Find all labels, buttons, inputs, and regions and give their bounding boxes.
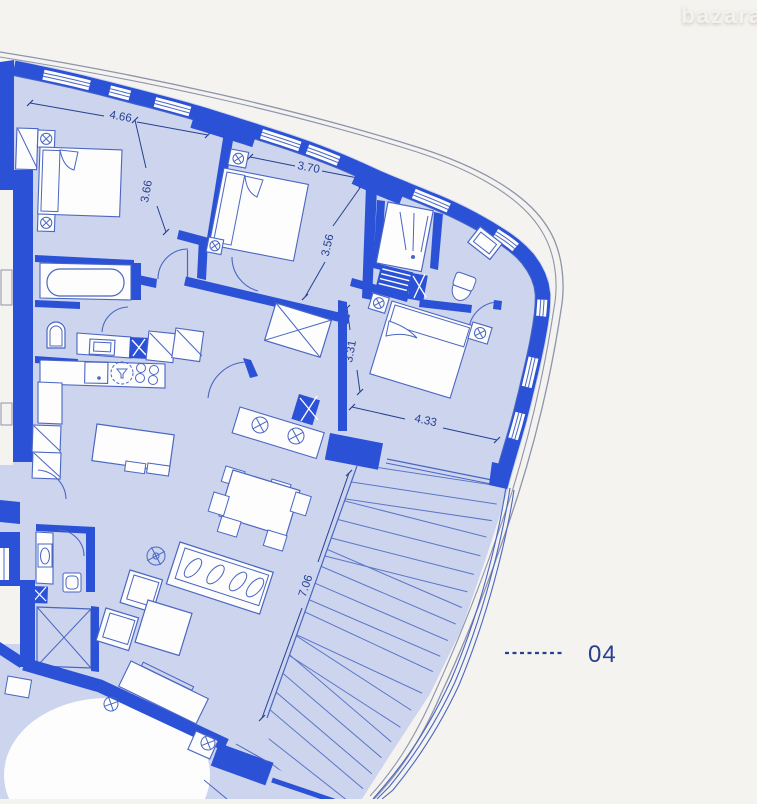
svg-text:04: 04 bbox=[588, 641, 617, 668]
svg-text:bazara: bazara bbox=[681, 2, 757, 28]
